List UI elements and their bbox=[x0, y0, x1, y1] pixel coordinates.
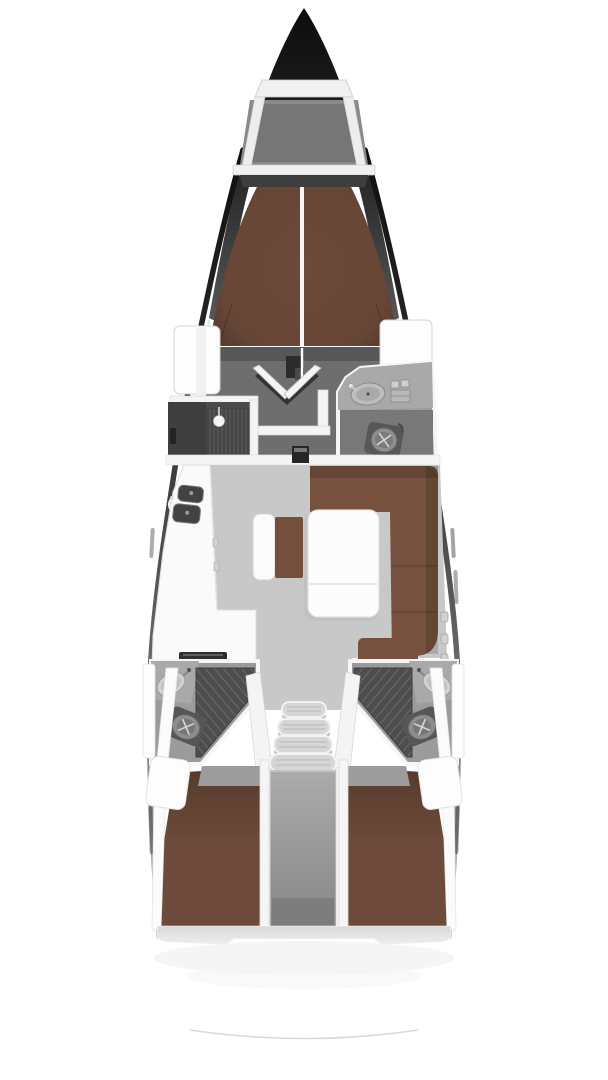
wardrobe-hanging-panel bbox=[206, 408, 250, 456]
stair-tread-4 bbox=[270, 754, 336, 772]
wardrobe-handle bbox=[170, 428, 176, 444]
starboard-hull-locker bbox=[452, 664, 464, 758]
starboard-aft-faucet bbox=[417, 668, 421, 672]
stern-platform-edge bbox=[190, 1030, 418, 1039]
hull-window-mid-starboard-1 bbox=[450, 528, 456, 558]
starboard-aft-shelf bbox=[344, 766, 410, 786]
port-aft-shelf bbox=[198, 766, 264, 786]
vestibule-wall-vertical bbox=[318, 390, 328, 430]
stern-wash-2 bbox=[186, 963, 422, 989]
galley-latch-1 bbox=[213, 538, 218, 547]
center-bench-frame bbox=[253, 514, 275, 580]
stair-tread-1 bbox=[282, 702, 326, 717]
forward-head bbox=[338, 362, 436, 459]
forward-head-toilet bbox=[363, 421, 404, 459]
hull-window-bow-port bbox=[182, 280, 194, 318]
port-hull-locker bbox=[143, 664, 155, 758]
sofa-back-top bbox=[310, 466, 438, 478]
stair-tread-3 bbox=[274, 736, 332, 753]
v-berth-center-split bbox=[300, 187, 304, 347]
port-aft-locker-box bbox=[145, 755, 192, 810]
port-aft-faucet bbox=[187, 668, 191, 672]
forward-bulkhead-bar bbox=[233, 165, 375, 175]
starboard-aft-locker-box bbox=[417, 755, 464, 810]
companionway-step-top bbox=[294, 448, 307, 452]
starboard-aft-bulkhead bbox=[339, 760, 348, 934]
yacht-floor-plan bbox=[0, 0, 608, 1080]
hull-latch-2 bbox=[441, 634, 448, 644]
center-bench-cushion bbox=[275, 517, 303, 578]
anchor-locker-shelf bbox=[255, 80, 353, 97]
sofa-back-right bbox=[426, 466, 438, 654]
stair-tread-2 bbox=[278, 719, 330, 735]
v-berth-footboard bbox=[211, 347, 397, 361]
port-aft-bulkhead bbox=[260, 760, 269, 934]
forepeak-strip bbox=[240, 175, 368, 187]
hull-window-mid-port bbox=[149, 528, 155, 558]
anchor-locker bbox=[233, 80, 375, 187]
stair-treads bbox=[270, 702, 336, 772]
anchor-locker-floor-inner bbox=[250, 104, 358, 162]
wardrobe-lamp bbox=[214, 416, 225, 427]
engine-shadow bbox=[272, 898, 334, 926]
galley-latch-2 bbox=[214, 562, 219, 571]
saloon-table bbox=[308, 510, 379, 617]
wardrobe-wall-right bbox=[250, 400, 258, 458]
wardrobe bbox=[168, 400, 258, 458]
vestibule-wall-horizontal bbox=[252, 426, 330, 435]
yacht-floor-plan-svg bbox=[0, 0, 608, 1080]
hull-latch-1 bbox=[441, 612, 448, 622]
hull-window-bow-starboard bbox=[414, 280, 426, 318]
galley-faucet-base bbox=[170, 496, 174, 500]
